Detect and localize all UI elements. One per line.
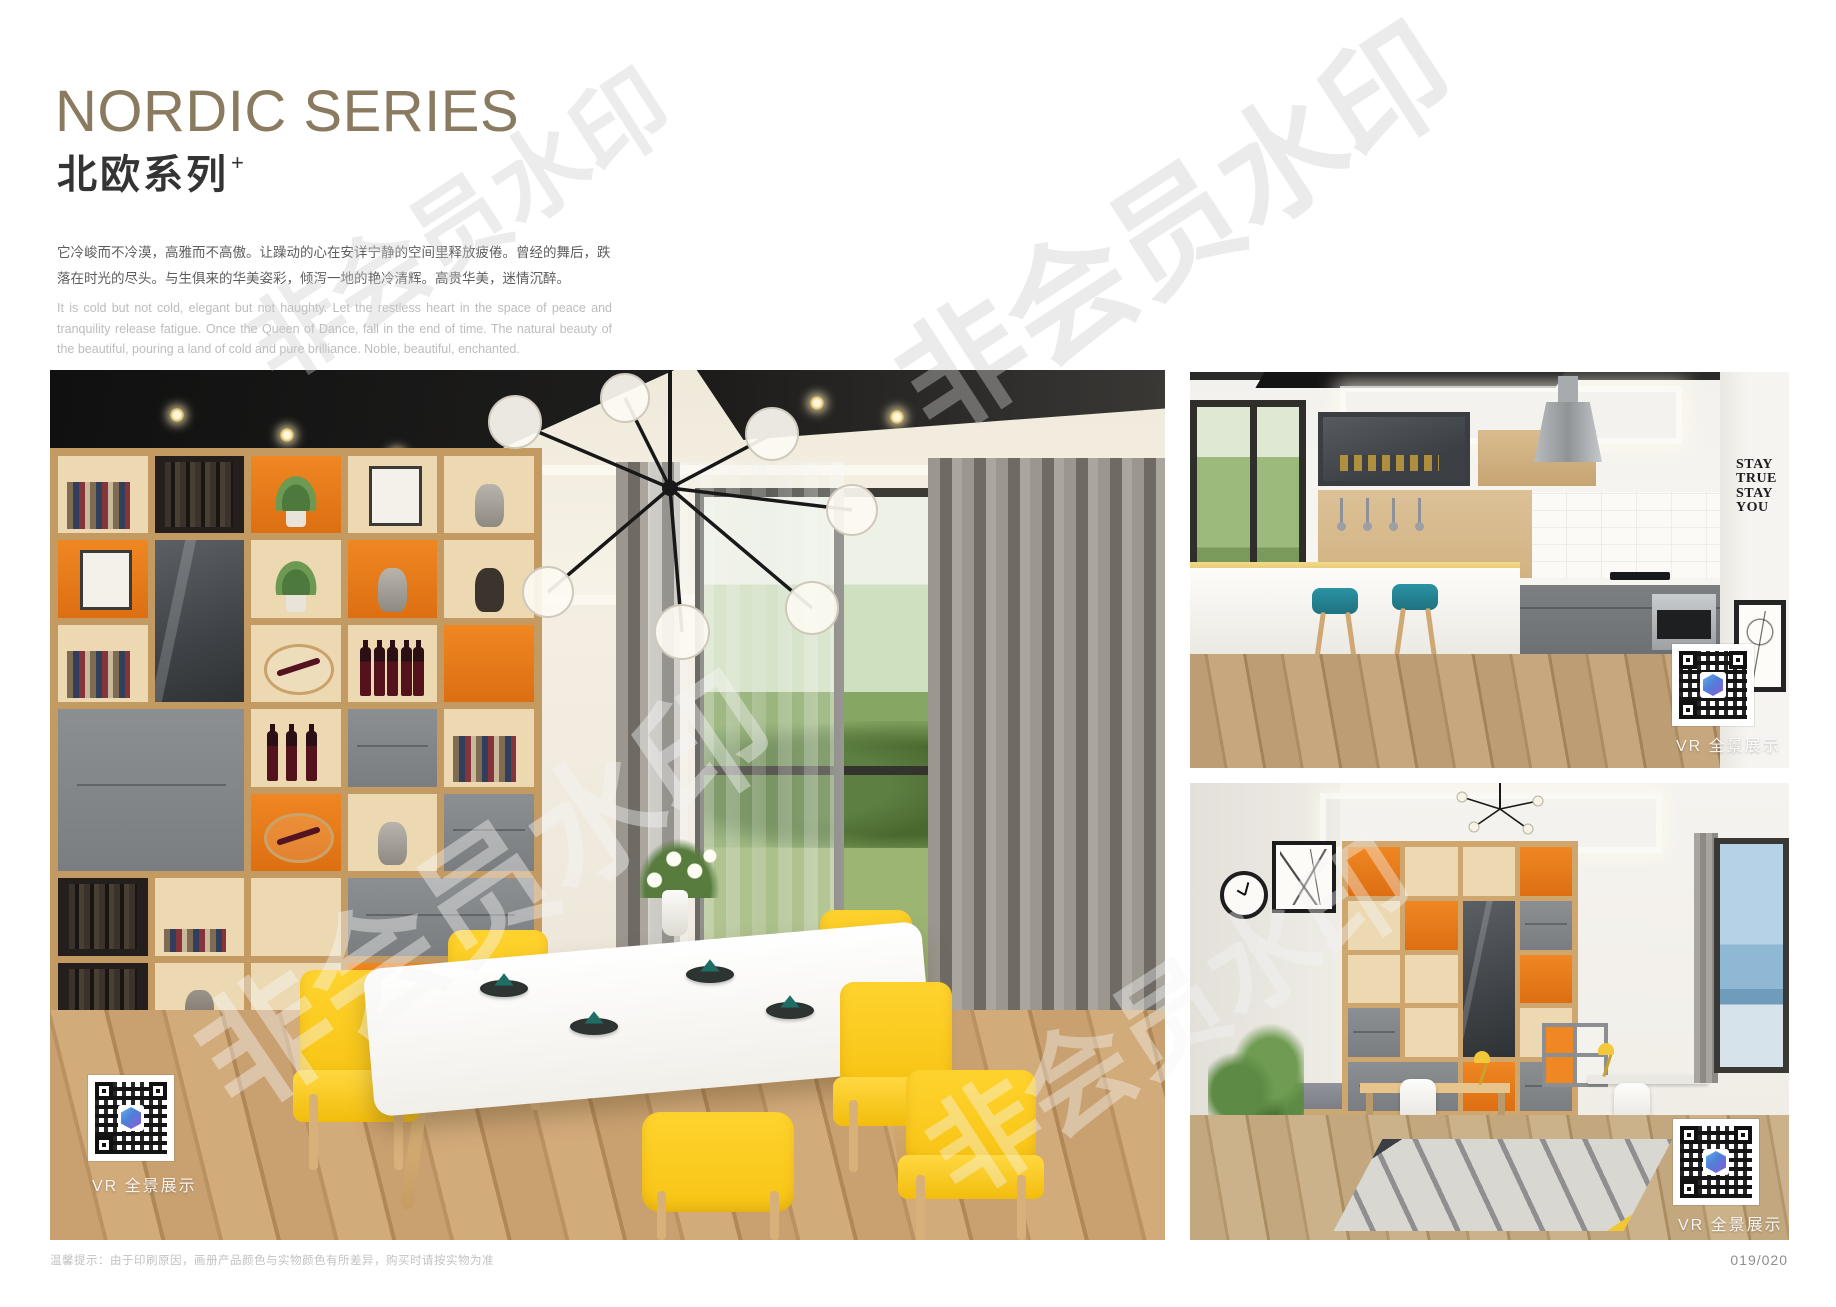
hanging-utensil [1340, 498, 1343, 524]
wall-clock [1220, 871, 1268, 919]
shelf-cell-orange [1348, 847, 1400, 896]
yellow-desk-lamp [1468, 1051, 1498, 1085]
qr-cube-logo [1703, 1149, 1729, 1175]
place-setting [480, 980, 528, 997]
dining-room-photo: VR 全景展示 [50, 370, 1165, 1240]
shelf-cell-dark-books [58, 878, 148, 955]
page-title-chinese: 北欧系列+ [57, 142, 245, 200]
decal-line: YOU [1736, 501, 1780, 515]
vr-caption: VR 全景展示 [92, 1172, 197, 1196]
decal-line: STAY [1736, 487, 1780, 501]
yellow-dining-chair [906, 1070, 1036, 1240]
qr-finder [149, 1082, 167, 1100]
hanging-utensil [1366, 498, 1369, 524]
shelf-cell-orange [1520, 847, 1572, 896]
yellow-dining-chair-front [642, 1112, 794, 1240]
tulip-bouquet [636, 838, 720, 898]
shelf-cell-orange [1520, 955, 1572, 1004]
shelf-cell-orange-wine [251, 794, 341, 871]
shelf-cell [1463, 847, 1515, 896]
page-title-chinese-text: 北欧系列 [57, 153, 229, 197]
shelf-cell-books [58, 456, 148, 533]
shelf-cell-decor [1405, 847, 1457, 896]
hanging-utensil [1418, 498, 1421, 524]
shelf-cell-wine-bottles [251, 709, 341, 786]
title-superscript: + [231, 150, 247, 175]
wall-decal-stay-true: STAY TRUE STAY YOU [1736, 458, 1780, 515]
study-room-photo: VR 全景展示 [1190, 783, 1789, 1240]
shelf-cell [1348, 955, 1400, 1004]
gray-curtain-right [928, 458, 1165, 1058]
glass-display-column [1463, 901, 1515, 1057]
kitchen-photo: STAY TRUE STAY YOU VR 全景展示 [1190, 372, 1789, 768]
page-title: NORDIC SERIES [55, 78, 519, 145]
shelf-cell-tray [155, 878, 245, 955]
vr-qr-code [1672, 644, 1754, 726]
shelf-cell [251, 878, 341, 955]
gray-cabinet-door [1348, 1008, 1400, 1057]
shelf-cell-wine-rack [251, 625, 341, 702]
mini-chandelier [1440, 783, 1560, 843]
flower-vase [662, 890, 688, 936]
qr-cube-logo [118, 1105, 144, 1131]
gray-cabinet-door [348, 709, 438, 786]
place-setting [570, 1018, 618, 1035]
hanging-utensil [1392, 498, 1395, 524]
study-window [1714, 838, 1789, 1073]
shelf-cell-dark-books [155, 456, 245, 533]
vr-qr-code [88, 1075, 174, 1161]
shelf-cell-jar [348, 794, 438, 871]
chair-leg [309, 1094, 318, 1170]
glass-upper-cabinet [1318, 412, 1470, 486]
intro-paragraph-english: It is cold but not cold, elegant but not… [57, 298, 612, 360]
geometric-rug [1334, 1139, 1673, 1231]
range-hood-duct [1558, 376, 1578, 406]
ceiling-spotlight [170, 408, 184, 422]
shelf-cell-orange [1405, 901, 1457, 950]
shelf-cell-orange-plant [251, 456, 341, 533]
yellow-desk-lamp [1592, 1043, 1622, 1077]
abstract-line-art [1272, 841, 1336, 913]
intro-paragraph-chinese: 它冷峻而不冷漠，高雅而不高傲。让躁动的心在安详宁静的空间里释放疲倦。曾经的舞后，… [57, 240, 617, 293]
print-disclaimer: 温馨提示：由于印刷原因，画册产品颜色与实物颜色有所差异，购买时请按实物为准 [50, 1252, 494, 1268]
vr-qr-code [1673, 1119, 1759, 1205]
decal-line: STAY [1736, 458, 1780, 472]
sky-sea-view [1720, 844, 1783, 1067]
decal-line: TRUE [1736, 472, 1780, 486]
glass-display-cabinet [155, 540, 245, 702]
vr-caption: VR 全景展示 [1676, 732, 1781, 756]
place-setting [766, 1002, 814, 1019]
qr-finder [95, 1082, 113, 1100]
place-setting [686, 966, 734, 983]
ceiling-spotlight [280, 428, 294, 442]
stool-cushion [1312, 588, 1358, 614]
page-number: 019/020 [1730, 1252, 1788, 1268]
built-in-oven [1652, 594, 1716, 650]
sputnik-chandelier [420, 370, 920, 710]
qr-cube-logo [1700, 672, 1726, 698]
gray-cabinet-door [1520, 901, 1572, 950]
gray-cabinet-door [444, 794, 534, 871]
vr-caption: VR 全景展示 [1678, 1211, 1783, 1235]
shelf-cell-decor [1348, 901, 1400, 950]
shelf-cell-decor [1405, 955, 1457, 1004]
catalog-page: NORDIC SERIES 北欧系列+ 它冷峻而不冷漠，高雅而不高傲。让躁动的心… [0, 0, 1836, 1307]
shelf-cell-plant [251, 540, 341, 617]
shelf-cell [1405, 1008, 1457, 1057]
shelf-cell-books [444, 709, 534, 786]
shelf-cell-books [58, 625, 148, 702]
qr-finder [95, 1136, 113, 1154]
gray-cabinet-doors [58, 709, 244, 871]
chair-shell [1400, 1079, 1436, 1119]
shelf-cell-orange [58, 540, 148, 617]
cooktop [1610, 572, 1670, 580]
